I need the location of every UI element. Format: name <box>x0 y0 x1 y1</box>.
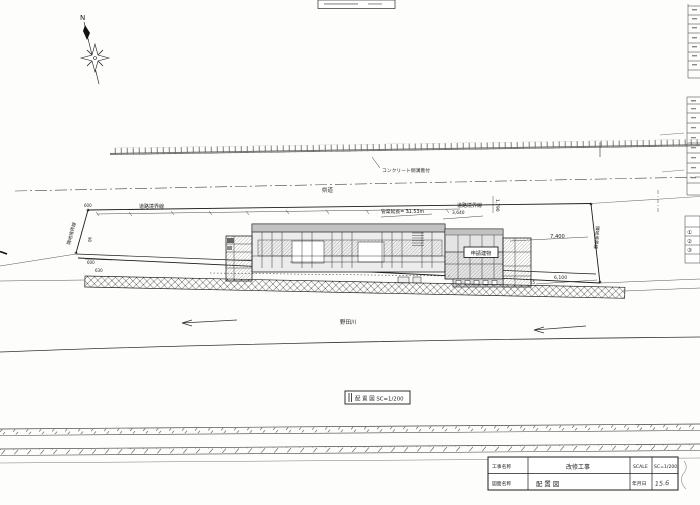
dim-3640: 3,640 <box>452 210 465 216</box>
legend-item-1: ① <box>687 230 692 236</box>
flow-arrow-left <box>182 320 237 326</box>
caption-box: 配 置 図 SC=1/200 <box>345 391 410 404</box>
illegible-text-mark <box>324 3 358 5</box>
road-boundary-label-right: 道路境界線 <box>457 202 482 209</box>
adjacent-boundary-label-left: 隣地境界線 <box>65 221 78 245</box>
top-note-box <box>318 0 395 9</box>
gutter-label: コンクリート側溝蓋付 <box>382 167 430 174</box>
revetment-band <box>85 276 625 298</box>
project-name-label: 工事名称 <box>492 463 511 470</box>
scan-mark <box>0 252 7 255</box>
gutter-leader <box>372 157 380 168</box>
dim-7400: 7,400 <box>550 234 565 240</box>
top-right-table <box>688 4 700 78</box>
compass-rose-icon: N <box>80 14 109 84</box>
road-centerline <box>15 177 700 191</box>
dim-600-bottom: 600 <box>87 260 95 265</box>
dim-6100: 6,100 <box>554 275 567 281</box>
legend-box: ① ② ③ <box>685 216 700 263</box>
legend-item-2: ② <box>687 238 692 245</box>
title-block: 工事名称 改修工事 SCALE SC=1/200 図面名称 配 置 図 年月日 … <box>488 457 686 490</box>
project-name-value: 改修工事 <box>566 463 590 471</box>
dim-90: 90 <box>87 237 92 243</box>
compass-north-label: N <box>80 14 85 22</box>
road-boundary-label-left: 道路境界線 <box>139 203 164 210</box>
date-value: 15.6 <box>655 479 670 488</box>
river: 野田川 <box>0 318 700 352</box>
caption-label: 配 置 図 SC=1/200 <box>355 396 404 403</box>
gutter-band <box>110 139 700 155</box>
compass-needle <box>83 25 90 40</box>
handwritten-mark <box>682 461 687 489</box>
flow-arrow-right <box>534 326 586 333</box>
sheet-name-value: 配 置 図 <box>536 480 559 488</box>
dim-630: 630 <box>95 268 103 273</box>
dim-1790: 1,790 <box>494 199 500 212</box>
scale-value: SC=1/200 <box>654 464 677 470</box>
river-name-label: 野田川 <box>340 318 357 326</box>
site-plan-drawing: N <box>0 0 700 505</box>
sheet-name-label: 図面名称 <box>492 480 511 487</box>
building-complex: 申請建物 <box>210 224 531 287</box>
scale-label: SCALE <box>633 464 648 470</box>
pipe-length-label: 管渠延長= 31.53m <box>381 208 424 215</box>
road-name-label: 県道 <box>322 186 334 194</box>
dim-600-top: 600 <box>84 203 92 208</box>
adjacent-boundary-label-right: 隣地境界線 <box>592 226 601 250</box>
site-plan-sheet: N <box>0 0 700 505</box>
illegible-text-mark <box>368 3 382 5</box>
date-label: 年月日 <box>632 480 646 487</box>
legend-item-3: ③ <box>687 248 692 254</box>
building-label: 申請建物 <box>471 249 492 257</box>
